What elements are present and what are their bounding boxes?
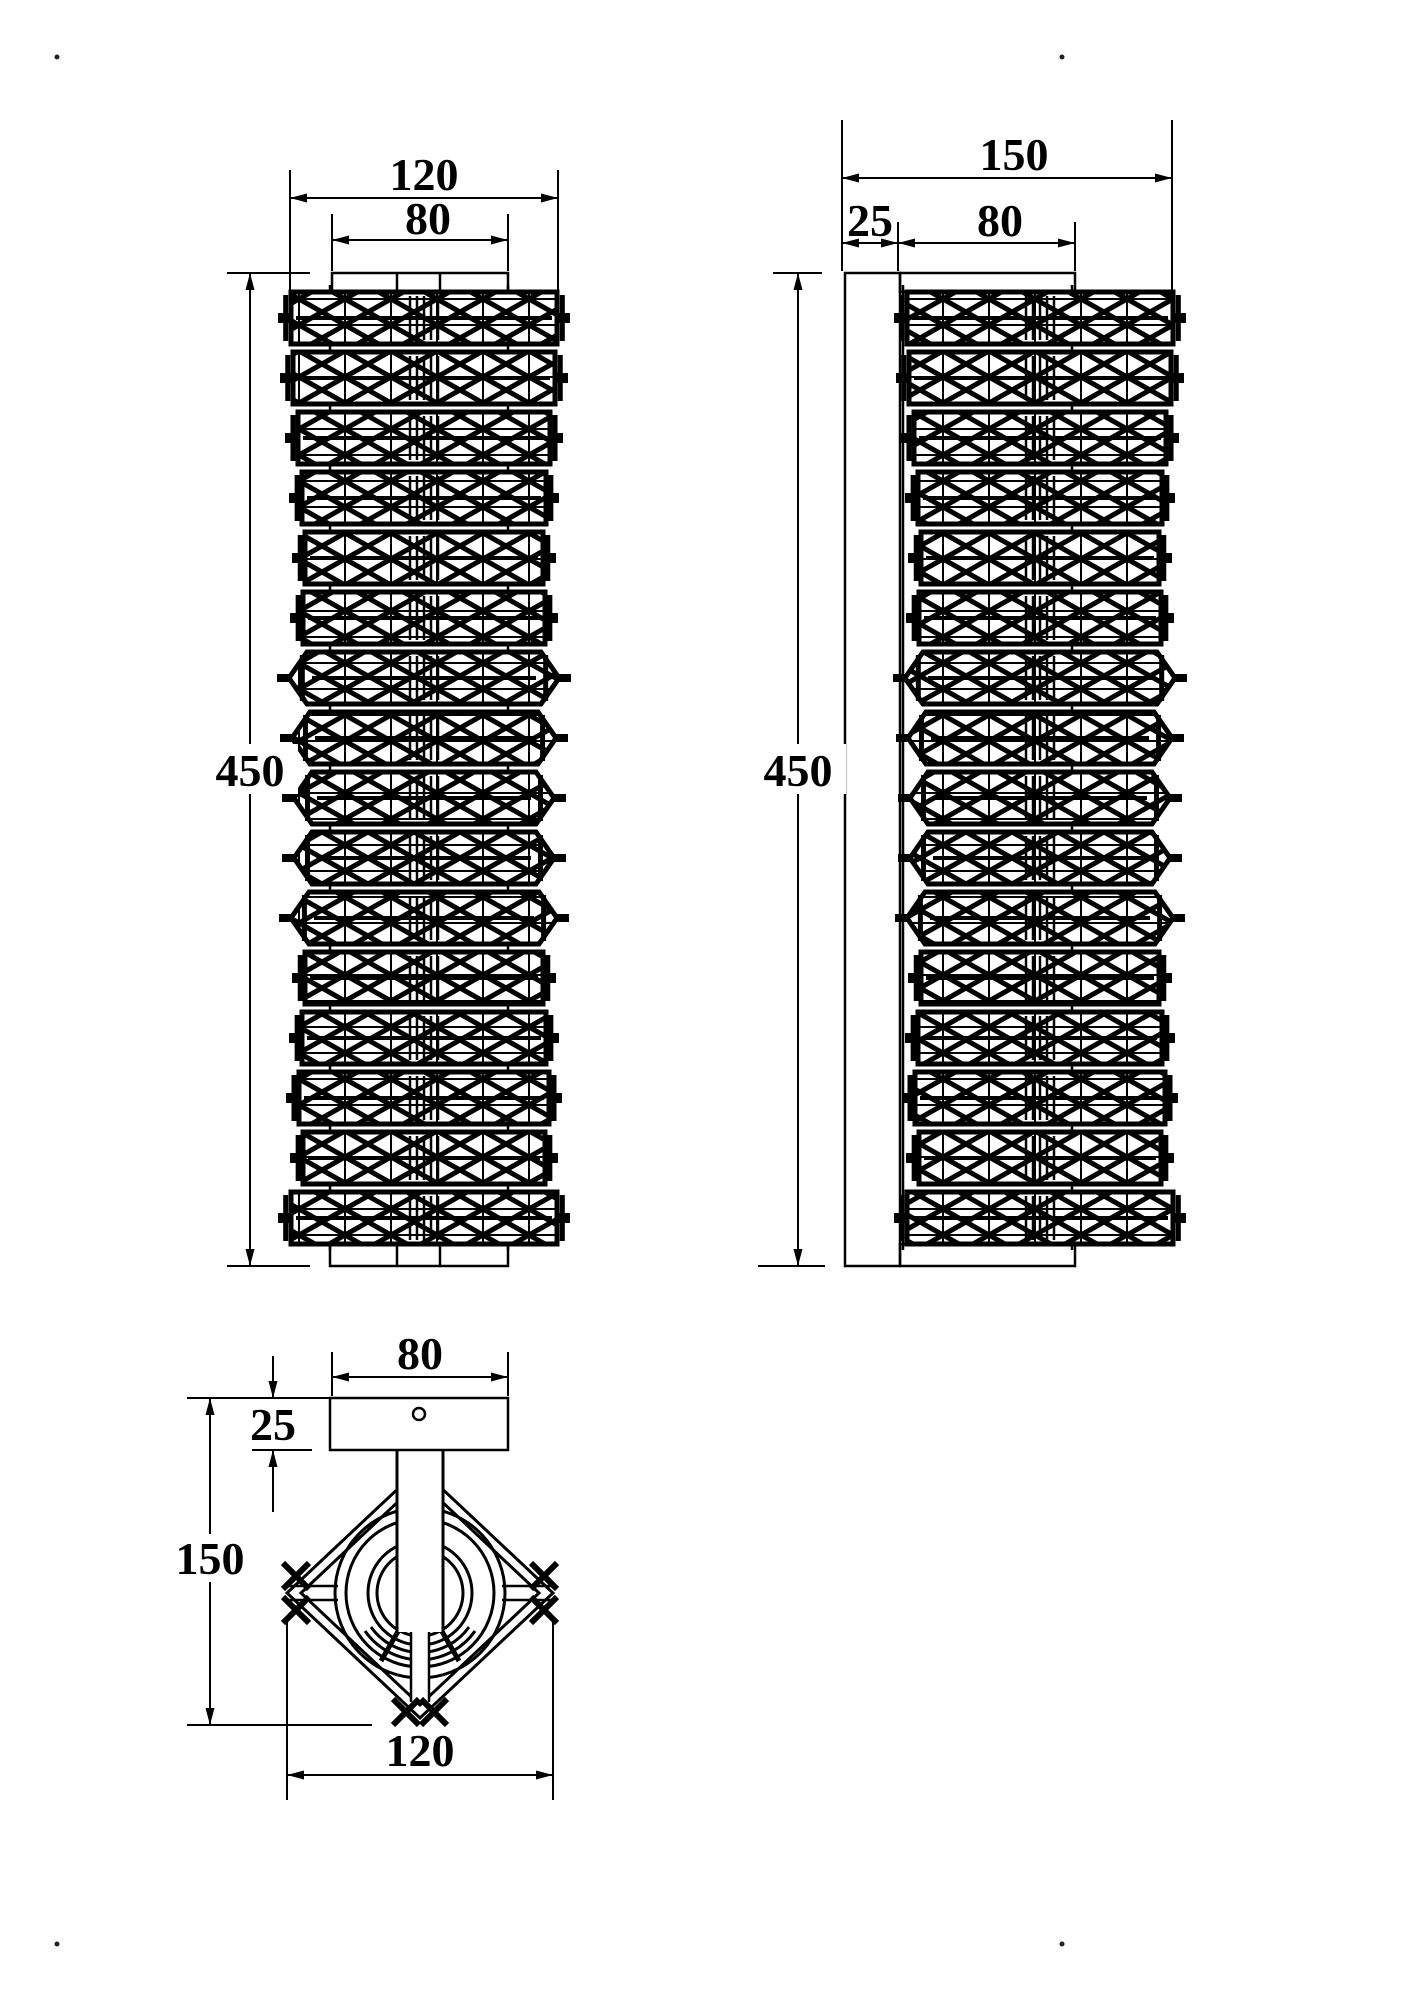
crystal-band xyxy=(894,292,1186,344)
crystal-band xyxy=(289,1012,559,1064)
crystal-band xyxy=(896,352,1184,404)
side-canopy-width-label: 80 xyxy=(977,195,1023,246)
crystal-stack xyxy=(893,292,1187,1244)
crystal-band xyxy=(289,472,559,524)
dim-front-canopy-width: 80 xyxy=(332,193,508,271)
side-backplate-label: 25 xyxy=(847,195,893,246)
dim-side-backplate: 25 xyxy=(842,195,898,271)
crystal-band xyxy=(908,532,1172,584)
crystal-band xyxy=(290,592,558,644)
crystal-band xyxy=(282,772,566,824)
crystal-band xyxy=(279,892,569,944)
crystal-band xyxy=(895,892,1185,944)
crystal-band xyxy=(286,1072,562,1124)
wall-plate xyxy=(845,273,900,1266)
crystal-band xyxy=(905,472,1175,524)
dim-side-canopy-width: 80 xyxy=(898,195,1075,271)
crystal-band xyxy=(906,1132,1174,1184)
crystal-band xyxy=(278,292,570,344)
top-width-label: 120 xyxy=(386,1725,455,1776)
side-height-label: 450 xyxy=(764,745,833,796)
dim-side-height: 450 xyxy=(750,273,846,1266)
crystal-band xyxy=(285,412,563,464)
top-depth-label: 150 xyxy=(176,1533,245,1584)
top-view: 80 25 150 120 xyxy=(168,1328,557,1800)
crystal-band xyxy=(290,1132,558,1184)
crystal-band xyxy=(278,1192,570,1244)
canopy-top xyxy=(332,273,508,292)
front-canopy-width-label: 80 xyxy=(405,193,451,244)
canopy-bottom-side xyxy=(900,1244,1075,1266)
top-canopy-depth-label: 25 xyxy=(250,1399,296,1450)
canopy-plan xyxy=(330,1398,508,1450)
crystal-band xyxy=(901,412,1179,464)
front-view: 120 80 450 xyxy=(202,149,571,1266)
top-canopy-width-label: 80 xyxy=(397,1328,443,1379)
crystal-band xyxy=(292,952,556,1004)
crystal-band xyxy=(894,1192,1186,1244)
crystal-band xyxy=(292,532,556,584)
crystal-band xyxy=(898,832,1182,884)
dim-top-canopy-width: 80 xyxy=(332,1328,508,1396)
dim-top-canopy-depth: 25 xyxy=(247,1356,312,1512)
crystal-band xyxy=(896,712,1184,764)
crystal-band xyxy=(905,1012,1175,1064)
side-depth-label: 150 xyxy=(980,129,1049,180)
crystal-band xyxy=(906,592,1174,644)
crystal-band xyxy=(280,352,568,404)
crystal-band xyxy=(893,652,1187,704)
crystal-band xyxy=(282,832,566,884)
front-height-label: 450 xyxy=(216,745,285,796)
technical-drawing: 120 80 450 xyxy=(0,0,1414,2000)
crystal-band xyxy=(898,772,1182,824)
crystal-band xyxy=(902,1072,1178,1124)
crystal-band xyxy=(908,952,1172,1004)
drawing-page: 120 80 450 xyxy=(0,0,1414,2000)
crystal-stack xyxy=(277,292,571,1244)
canopy-top-side xyxy=(900,273,1075,292)
crystal-band xyxy=(277,652,571,704)
crystal-band xyxy=(280,712,568,764)
side-view: 150 25 80 450 xyxy=(750,120,1187,1266)
canopy-bottom xyxy=(330,1244,508,1266)
